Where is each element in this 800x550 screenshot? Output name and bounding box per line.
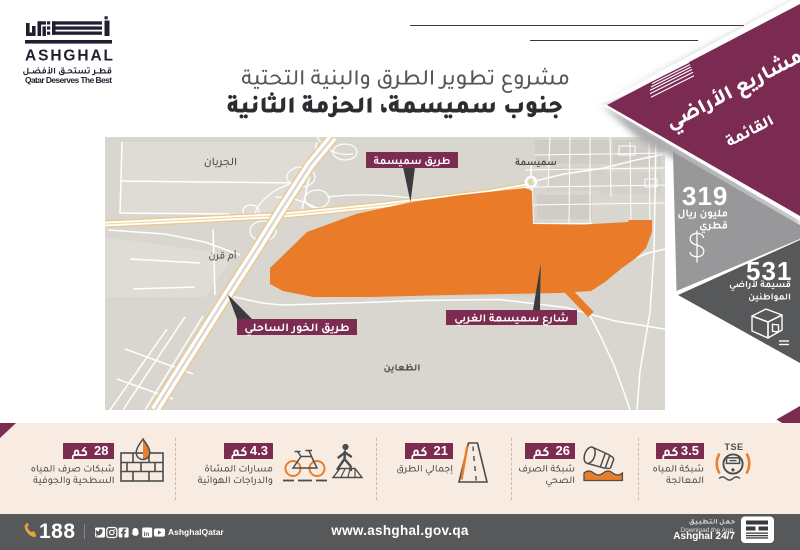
svg-text:in: in xyxy=(144,531,150,538)
svg-text:Qatar Deserves The Best: Qatar Deserves The Best xyxy=(25,75,112,85)
svg-text:ASHGHAL: ASHGHAL xyxy=(25,48,113,65)
